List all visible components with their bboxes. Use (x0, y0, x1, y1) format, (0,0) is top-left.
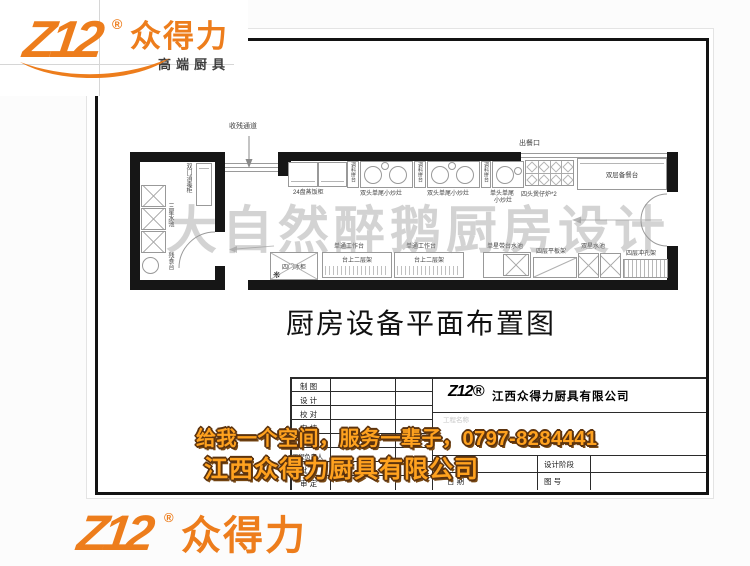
burner (431, 166, 449, 184)
title-block-company: 江西众得力厨具有限公司 (492, 388, 630, 404)
burner (496, 166, 514, 184)
burner-diamond-icon (526, 161, 537, 172)
serving-pass-label: 出餐口 (519, 140, 540, 149)
sink-unit (141, 208, 166, 230)
prep-counter-label: 双层备餐台 (578, 159, 666, 189)
burner-small (381, 162, 389, 170)
burner-diamond-icon (562, 161, 573, 172)
registered-icon: ® (112, 16, 122, 32)
burner-diamond-icon (526, 174, 537, 185)
corridor-label: 收残通道 (229, 123, 257, 132)
tb-number-label: 图 号 (544, 476, 561, 487)
spice-counter-label: 调料拼台 (417, 162, 422, 182)
sink-unit (141, 231, 166, 253)
spice-counter-label: 调料拼台 (350, 162, 355, 182)
sink-unit (141, 185, 166, 207)
claypot-burner (538, 161, 550, 173)
promo-company: 江西众得力厨具有限公司 (204, 449, 479, 484)
burner-diamond-icon (538, 174, 549, 185)
brand-logo-partial: Z12 ® 众得力 (78, 506, 378, 566)
logo-name: 众得力 (130, 21, 229, 52)
burner-diamond-icon (550, 174, 561, 185)
title-block-line (590, 455, 591, 490)
steamer-line (321, 181, 344, 182)
claypot-burner (526, 161, 538, 173)
logo-swoosh-icon (18, 56, 178, 82)
burner-small (514, 167, 522, 175)
burner-diamond-icon (562, 174, 573, 185)
promo-slogan-phone: 给我一个空间，服务一辈子，0797-8284441 (196, 422, 598, 451)
pass-window-line (225, 163, 278, 164)
claypot-stove (525, 160, 574, 186)
wall (667, 152, 678, 192)
wall (130, 280, 222, 290)
logo-name: 众得力 (181, 516, 307, 556)
burner-diamond-icon (550, 161, 561, 172)
claypot-burner (538, 173, 550, 185)
pass-window-line (225, 167, 278, 168)
burner-small (448, 162, 456, 170)
prep-counter: 双层备餐台 (577, 158, 667, 190)
serving-opening-line (521, 153, 667, 154)
brand-logo: Z12 ® 众得力 高端厨具 (0, 0, 248, 96)
wall (248, 280, 678, 290)
burner (389, 166, 407, 184)
steamer-cabinet (318, 162, 347, 187)
tb-stage-label: 设计阶段 (544, 459, 574, 470)
pass-window-line (225, 171, 278, 172)
waste-table-shape (142, 257, 159, 274)
claypot-burner (561, 173, 573, 185)
title-block-line (432, 412, 706, 413)
title-block-line (290, 377, 706, 379)
drawing-title: 厨房设备平面布置图 (286, 302, 556, 342)
burner (364, 166, 382, 184)
wall (215, 266, 225, 290)
steamer-line (291, 181, 315, 182)
logo-mark: Z12 (74, 508, 152, 558)
tb-row-draft: 制 图 (300, 381, 317, 392)
title-block-line (537, 455, 538, 490)
wall (130, 152, 140, 290)
claypot-burner (526, 173, 538, 185)
spice-counter-label: 调料拼台 (483, 162, 488, 182)
shelf-hatch (325, 266, 389, 275)
watermark-text: 大自然醉鹅厨房设计 (166, 189, 670, 263)
cabinet-shelf-line (199, 168, 209, 169)
burner-diamond-icon (538, 161, 549, 172)
claypot-burner (550, 161, 562, 173)
claypot-burner (550, 173, 562, 185)
registered-icon: ® (164, 510, 174, 525)
steamer-cabinet (288, 162, 318, 187)
burner (456, 166, 474, 184)
shelf-hatch (397, 266, 461, 275)
tb-row-check: 校 对 (300, 409, 317, 420)
snowflake-icon: ❋ (273, 270, 281, 281)
wall (130, 152, 225, 162)
title-block-logo-mark: Z12® (448, 383, 483, 401)
wall (278, 152, 521, 161)
tb-row-design: 设 计 (300, 395, 317, 406)
claypot-grid (526, 161, 573, 185)
claypot-burner (561, 161, 573, 173)
